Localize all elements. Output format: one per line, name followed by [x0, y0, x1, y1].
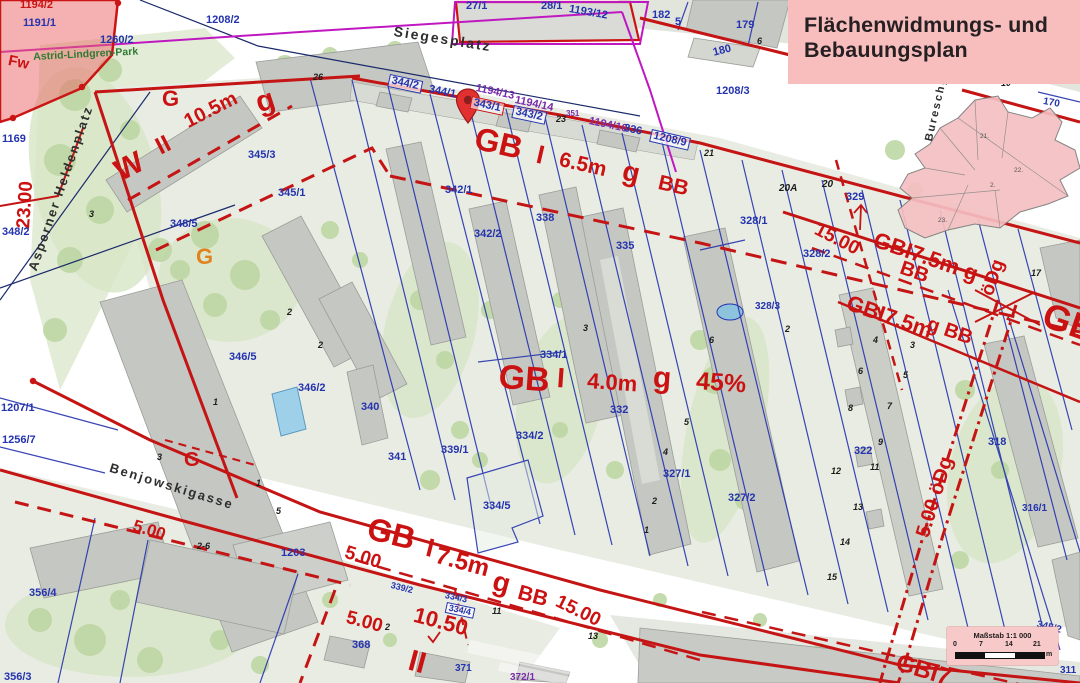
parcel-label: 334/5	[483, 501, 511, 512]
parcel-label: 338	[536, 213, 554, 224]
parcel-label: 311	[1060, 666, 1076, 676]
parcel-label: 179	[736, 20, 754, 31]
scale-seg-1	[956, 653, 985, 658]
addresse-label: 23	[556, 115, 566, 124]
addresse-label: 11	[492, 607, 501, 616]
addresse-label: 14	[840, 538, 850, 547]
parcel-label: 368	[352, 640, 370, 651]
parcel-label: 356/4	[29, 588, 57, 599]
vienna-inset	[898, 96, 1080, 238]
parcel-label: 334/1	[540, 350, 568, 361]
addresse-label: 2-6	[197, 542, 210, 551]
parcel-label: 1194/2	[20, 0, 53, 11]
parcel-label: 335	[616, 241, 634, 252]
scale-unit: m	[1046, 651, 1052, 658]
inset-label: 22.	[1014, 168, 1023, 175]
addresse-label: 26	[313, 73, 323, 82]
plan-title-line2: Bebauungsplan	[804, 38, 1080, 63]
scale-bar	[955, 652, 1045, 659]
addresse-label: 1	[644, 526, 649, 535]
addresse-label: 12	[831, 467, 841, 476]
addresse-label: 4	[873, 336, 878, 345]
addresse-label: 3	[157, 453, 162, 462]
scale-tick: 0	[953, 641, 957, 648]
parcel-label: 341	[388, 452, 406, 463]
addresse-label: 2	[652, 497, 657, 506]
parcel-label: 346/2	[298, 383, 326, 394]
parcel-label: 345/3	[248, 150, 276, 161]
addresse-label: 5	[903, 371, 908, 380]
scale-seg-2	[985, 653, 1014, 658]
addresse-label: 3	[583, 324, 588, 333]
scale-tick: 21	[1033, 641, 1041, 648]
zone-label: 4.0m	[586, 370, 638, 395]
parcel-label: 1208/3	[716, 86, 750, 97]
parcel-label: 372/1	[510, 673, 535, 683]
addresse-label: 4	[663, 448, 668, 457]
addresse-label: 2	[785, 325, 790, 334]
scale-bar-box: Maßstab 1:1 000 071421 m	[947, 627, 1058, 665]
addresse-label: 13	[853, 503, 863, 512]
zone-label: GB	[498, 360, 551, 397]
parcel-label: 182	[652, 10, 670, 21]
parcel-label: 342/2	[474, 229, 502, 240]
addresse-label: 15	[827, 573, 837, 582]
parcel-label: 356/3	[4, 672, 32, 683]
addresse-label: 8	[848, 404, 853, 413]
zone-label: G	[184, 450, 200, 470]
parcel-label: 318	[988, 437, 1006, 448]
zone-label: 23.00	[14, 181, 36, 230]
inset-label: 2.	[990, 183, 995, 190]
addresse-label: 9	[878, 438, 883, 447]
parcel-label: 316/1	[1022, 504, 1047, 514]
addresse-label: 17	[1031, 269, 1041, 278]
parcel-label: 1207/1	[1, 403, 35, 414]
parcel-label: 28/1	[541, 1, 562, 12]
parcel-label: 1256/7	[2, 435, 36, 446]
addresse-label: 11	[870, 463, 879, 472]
addresse-label: 6	[757, 37, 762, 46]
inset-label: 23.	[938, 218, 947, 225]
zone-label: G	[196, 246, 213, 268]
addresse-label: 2	[318, 341, 323, 350]
zoning-map[interactable]: SiegesplatzAsperner HeldenplatzBenjowski…	[0, 0, 1080, 683]
parcel-label: 327/1	[663, 469, 691, 480]
parcel-label: 342/1	[445, 185, 473, 196]
parcel-label: 345/1	[278, 188, 306, 199]
scale-tick: 7	[979, 641, 983, 648]
parcel-label: 340	[361, 402, 379, 413]
scale-tick: 14	[1005, 641, 1013, 648]
addresse-label: 20	[822, 180, 833, 190]
parcel-label: 1169	[2, 134, 26, 145]
zone-label: Fw	[7, 53, 31, 72]
parcel-label: 328/2	[803, 249, 831, 260]
addresse-label: 2	[385, 623, 390, 632]
parcel-label: 348/2	[2, 227, 30, 238]
addresse-label: 3	[910, 341, 915, 350]
plan-title-line1: Flächenwidmungs- und	[804, 13, 1080, 38]
parcel-label: 327/2	[728, 493, 756, 504]
addresse-label: 21	[704, 149, 714, 158]
parcel-label: 1260/2	[100, 35, 134, 46]
parcel-label: 5	[675, 17, 681, 28]
addresse-label: 6	[858, 367, 863, 376]
parcel-label: 339/1	[441, 445, 469, 456]
addresse-label: 20A	[779, 184, 797, 194]
addresse-label: 2	[287, 308, 292, 317]
parcel-label: 1208/2	[206, 15, 240, 26]
zone-label: g	[652, 363, 672, 394]
zone-label: G	[162, 88, 179, 110]
parcel-label: 348/5	[170, 219, 198, 230]
parcel-label: 346/5	[229, 352, 257, 363]
addresse-label: 1	[213, 398, 218, 407]
addresse-label: 5	[684, 418, 689, 427]
parcel-label: 371	[455, 664, 472, 674]
addresse-label: 1	[256, 479, 261, 488]
addresse-label: 3	[89, 210, 94, 219]
parcel-label: 322	[854, 446, 872, 457]
plan-title-box: Flächenwidmungs- und Bebauungsplan	[788, 0, 1080, 84]
addresse-label: 7	[887, 402, 892, 411]
parcel-label: 328/1	[740, 216, 768, 227]
addresse-label: 13	[588, 632, 598, 641]
addresse-label: 6	[709, 336, 714, 345]
scale-seg-3	[1015, 653, 1044, 658]
addresse-label: 5	[276, 507, 281, 516]
parcel-label: 332	[610, 405, 628, 416]
parcel-label: 1191/1	[23, 18, 56, 29]
parcel-label: 351	[566, 110, 579, 118]
zone-label: 45%	[695, 369, 747, 397]
parcel-label: 334/2	[516, 431, 544, 442]
inset-label: 21.	[980, 134, 989, 141]
parcel-label: 1203	[281, 548, 305, 559]
scale-title: Maßstab 1:1 000	[947, 631, 1058, 640]
parcel-label: 328/3	[755, 302, 780, 312]
parcel-label: 329	[846, 192, 864, 203]
parcel-label: 27/1	[466, 1, 487, 12]
